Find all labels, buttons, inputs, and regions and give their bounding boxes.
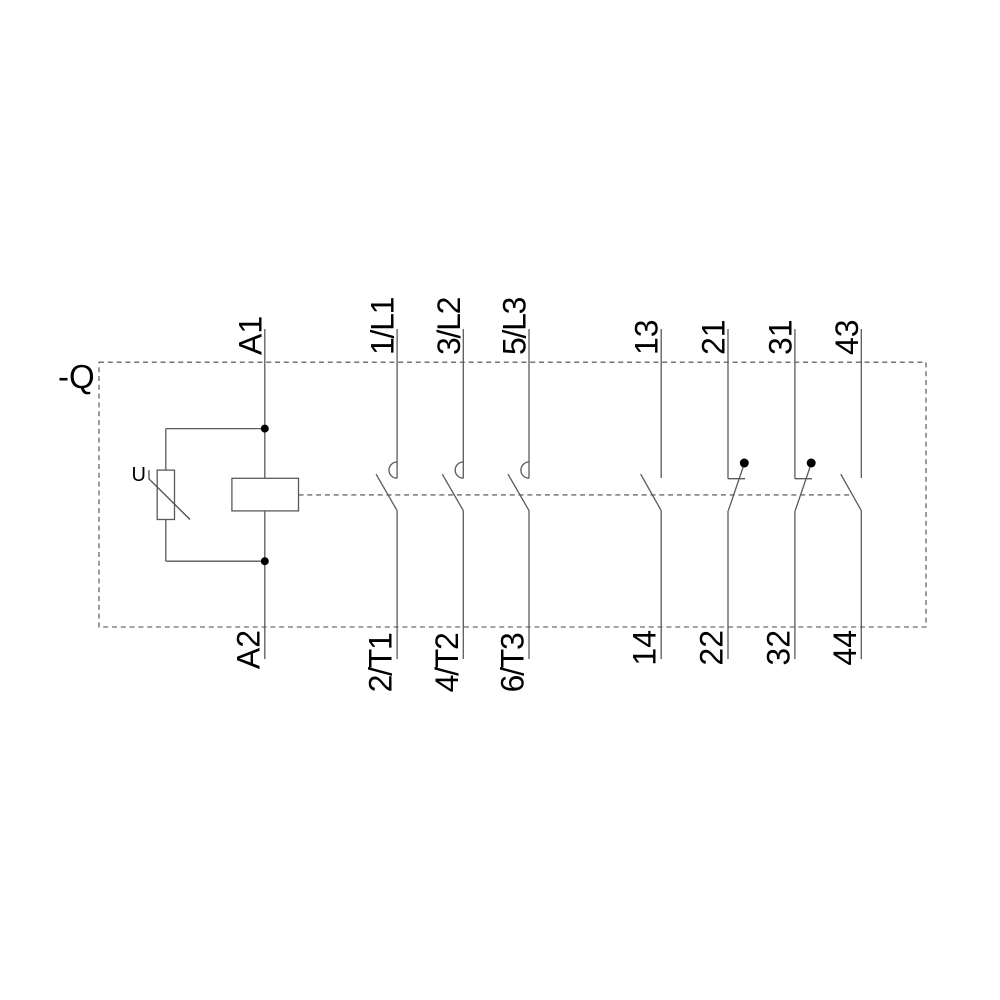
svg-text:U: U: [132, 464, 146, 486]
svg-text:32: 32: [760, 630, 796, 666]
svg-text:21: 21: [696, 319, 732, 355]
svg-text:22: 22: [694, 630, 730, 666]
svg-text:2/T1: 2/T1: [363, 633, 399, 692]
svg-text:31: 31: [762, 319, 798, 355]
svg-text:-Q: -Q: [58, 358, 95, 395]
svg-text:14: 14: [627, 630, 663, 666]
svg-text:4/T2: 4/T2: [429, 633, 465, 692]
svg-text:1/L1: 1/L1: [365, 297, 401, 355]
svg-text:44: 44: [827, 630, 863, 666]
svg-text:6/T3: 6/T3: [495, 633, 531, 692]
svg-text:13: 13: [629, 319, 665, 355]
svg-text:43: 43: [829, 319, 865, 355]
svg-text:A2: A2: [230, 630, 266, 669]
svg-text:5/L3: 5/L3: [497, 297, 533, 355]
svg-text:3/L2: 3/L2: [431, 297, 467, 355]
svg-text:A1: A1: [232, 316, 268, 355]
